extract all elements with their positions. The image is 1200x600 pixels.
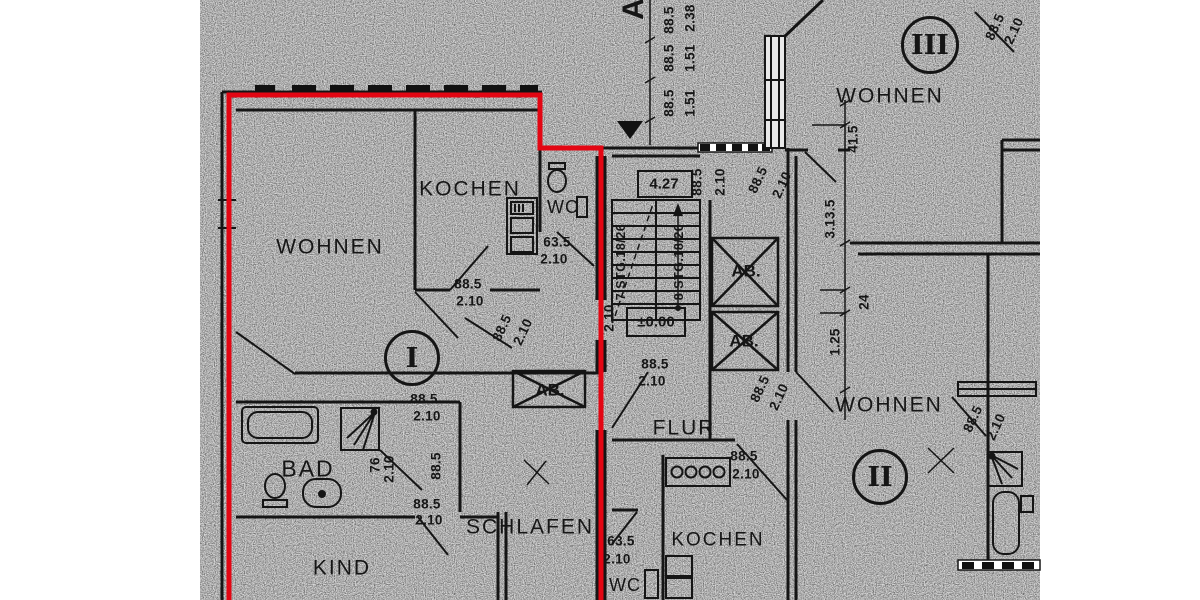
dim-wc1-door-value: 2.10 — [540, 252, 567, 266]
dim-chain2-value: 1.51 — [683, 44, 697, 71]
dim-mid-door-value: 2.10 — [732, 467, 759, 481]
room-label-wohnen-2: WOHNEN — [835, 395, 943, 416]
dim-unit1-door-value: 2.10 — [413, 409, 440, 423]
dim-bad-wall-width: 88.5 — [429, 452, 443, 479]
dim-wc1-door-width: 63.5 — [543, 235, 570, 249]
dim-bottomright-door-width: 88.5 — [961, 404, 985, 435]
dim-hall-door-value: 2.10 — [511, 317, 535, 348]
floorplan-canvas: WOHNEN KOCHEN WC BAD KIND SCHLAFEN FLUR … — [0, 0, 1200, 600]
room-label-schlafen: SCHLAFEN — [466, 517, 594, 538]
dim-bad-door-value: 2.10 — [382, 455, 396, 482]
dim-kind-door-value: 2.10 — [415, 513, 442, 527]
entry-width-dimension: 4.27 — [649, 177, 678, 192]
stair-flight-right-label: 8 STG.18/26 — [673, 224, 686, 300]
dim-unit1-door-width: 88.5 — [410, 392, 437, 406]
room-label-wohnen-1: WOHNEN — [276, 237, 384, 258]
unit-circle-2: II — [852, 449, 908, 505]
dim-chain1-value: 2.38 — [683, 4, 697, 31]
dim-kochen-door-value: 2.10 — [456, 294, 483, 308]
plan-labels: WOHNEN KOCHEN WC BAD KIND SCHLAFEN FLUR … — [0, 0, 1200, 600]
dim-stair-door1-width: 88.5 — [690, 168, 704, 195]
dim-stair-door2-width: 88.5 — [746, 165, 770, 196]
unit-circle-3: III — [901, 16, 959, 74]
dim-kind-door-width: 88.5 — [413, 497, 440, 511]
shaft-label-ab2: AB. — [731, 263, 760, 280]
dim-chain3-width: 88.5 — [662, 89, 676, 116]
dim-bad-door-width: 76 — [368, 457, 382, 473]
stair-flight-left-label: 7 STG.18/26 — [615, 224, 628, 300]
room-label-bad: BAD — [281, 458, 334, 481]
dim-flur-right-door-value: 2.10 — [767, 382, 791, 413]
unit-circle-1: I — [384, 330, 440, 386]
dim-mid-door-width: 88.5 — [730, 449, 757, 463]
room-label-flur: FLUR — [653, 418, 716, 439]
dim-chain3-value: 1.51 — [683, 89, 697, 116]
dim-wc2-door-width: 63.5 — [607, 534, 634, 548]
dim-stair-door1-value: 2.10 — [713, 168, 727, 195]
dim-chain2-width: 88.5 — [662, 44, 676, 71]
dim-right-chain-2: 3.13.5 — [823, 199, 837, 238]
dim-right-chain-1: 41.5 — [846, 125, 860, 152]
dim-lone-value: 2.10 — [602, 304, 616, 331]
dim-flur-door-value: 2.10 — [638, 374, 665, 388]
dim-kochen-door-width: 88.5 — [454, 277, 481, 291]
room-label-kind: KIND — [313, 558, 371, 579]
room-label-kochen-2: KOCHEN — [671, 531, 764, 550]
dim-stair-door2-value: 2.10 — [770, 170, 794, 201]
dim-chain1-width: 88.5 — [662, 6, 676, 33]
room-label-wohnen-3: WOHNEN — [836, 86, 944, 107]
shaft-label-ab3: AB. — [729, 333, 758, 350]
dim-wc2-door-value: 2.10 — [603, 552, 630, 566]
shaft-label-ab1: AB. — [535, 382, 564, 399]
dim-flur-door-width: 88.5 — [641, 357, 668, 371]
room-label-wc-2: WC — [609, 576, 641, 594]
dim-right-chain-3: 24 — [857, 294, 871, 310]
room-label-wc-1: WC — [547, 198, 579, 216]
room-label-kochen-1: KOCHEN — [419, 179, 521, 200]
section-marker-a: A — [619, 0, 649, 20]
dim-right-chain-4: 1.25 — [828, 328, 842, 355]
dim-bottomright-door-value: 2.10 — [984, 412, 1008, 443]
level-marker: ±0.00 — [637, 315, 674, 330]
